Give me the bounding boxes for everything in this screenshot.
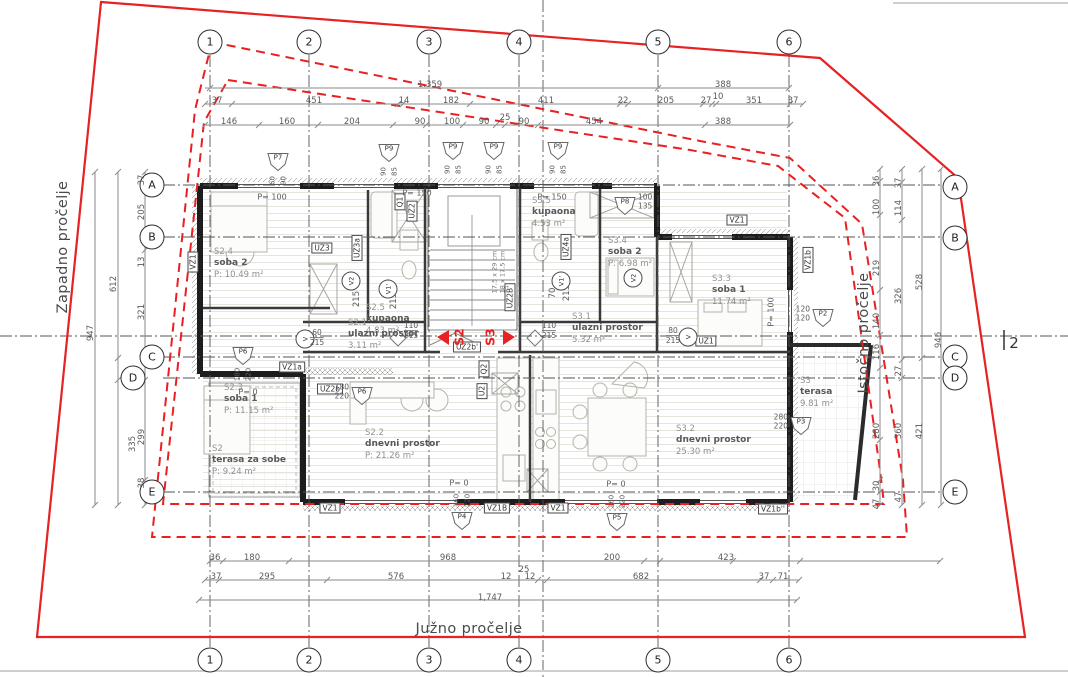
grid-bubble-B: B xyxy=(943,226,968,251)
grid-bubble-D: D xyxy=(943,366,968,391)
window-tag-dims: 280220 xyxy=(774,413,788,431)
room-label-S3.3: S3.3soba 111.74 m² xyxy=(712,274,751,308)
room-area: 11.74 m² xyxy=(712,297,751,308)
dim-label: 10 xyxy=(713,92,724,102)
wall-tag-VZ1: VZ1 xyxy=(188,251,199,272)
dim-label: 114 xyxy=(894,200,904,216)
room-id: S2.4 xyxy=(214,247,263,258)
room-label-S2.2: S2.2dnevni prostorP: 21.26 m² xyxy=(365,428,440,462)
grid-bubble-C: C xyxy=(140,345,165,370)
grid-bubble-2: 2 xyxy=(297,648,322,673)
room-label-S3.1: S3.1ulazni prostor5.32 m² xyxy=(572,312,643,346)
dim-label: 36 xyxy=(872,176,882,187)
dim-label: 37 xyxy=(759,572,770,582)
dim-label: 12 xyxy=(501,572,512,582)
room-name: soba 2 xyxy=(214,258,263,270)
dim-label: 90 xyxy=(415,117,426,127)
window-tag-P6: P6180220 xyxy=(351,387,373,406)
window-tag-dims: 9085 xyxy=(379,165,399,179)
wall-tag-U2: U2 xyxy=(477,383,488,399)
section-number-label: 2 xyxy=(1009,334,1019,352)
dim-label: 37 xyxy=(211,572,222,582)
window-tag-dims: 160220 xyxy=(607,495,627,509)
facade-label-south: Južno pročelje xyxy=(416,621,523,637)
dim-label: 351 xyxy=(746,96,762,106)
window-tag-dims: 9085 xyxy=(443,163,463,177)
window-tag-dims: 180220 xyxy=(335,383,349,401)
vent-tag-V: V xyxy=(679,328,698,347)
dim-label: 37 xyxy=(137,175,147,186)
wall-tag-VZ1B: VZ1B xyxy=(484,503,510,514)
room-area: P: 10.49 m² xyxy=(214,270,263,281)
dim-label: 200 xyxy=(604,553,620,563)
wall-tag-VZ1: VZ1 xyxy=(726,215,747,226)
grid-bubble-3: 3 xyxy=(417,648,442,673)
dim-label: 47 xyxy=(872,499,882,510)
dim-label: 528 xyxy=(915,274,925,290)
dim-label: 299 xyxy=(137,429,147,445)
facade-label-east: Istočno pročelje xyxy=(856,272,872,393)
dim-label: 388 xyxy=(715,80,731,90)
window-tag-dims: 180220 xyxy=(233,368,253,382)
dim-label: 205 xyxy=(137,204,147,220)
room-name: terasa za sobe xyxy=(212,455,286,467)
room-name: ulazni prostor xyxy=(572,323,643,335)
surface-value-label: P= 150 xyxy=(537,193,566,202)
dim-label: 204 xyxy=(344,117,360,127)
window-tag-P9: P99085 xyxy=(442,142,464,161)
dim-label: 388 xyxy=(715,117,731,127)
room-id: S2.5 xyxy=(366,303,410,314)
grid-bubble-6: 6 xyxy=(777,648,802,673)
dim-label: 37 xyxy=(212,96,223,106)
section-marker-s2: S2 xyxy=(452,328,467,346)
room-label-S3: S3terasa9.81 m² xyxy=(800,376,833,410)
dim-label: 947 xyxy=(86,325,96,341)
section-marker-s3: S3 xyxy=(483,328,498,346)
room-name: dnevni prostor xyxy=(676,435,751,447)
window-tag-dims: 100135 xyxy=(638,193,652,211)
grid-bubble-B: B xyxy=(140,225,165,250)
dim-label: 295 xyxy=(259,572,275,582)
window-tag-P7: P76090 xyxy=(267,153,289,172)
wall-tag-VZ1: VZ1 xyxy=(547,503,568,514)
grid-bubble-5: 5 xyxy=(646,30,671,55)
wall-tag-VZ1a: VZ1a xyxy=(279,362,305,373)
room-area: 9.81 m² xyxy=(800,399,833,410)
room-label-S3.2: S3.2dnevni prostor25.30 m² xyxy=(676,424,751,458)
room-id: S3.3 xyxy=(712,274,751,285)
wall-tag-VZ1b'': VZ1b'' xyxy=(758,504,788,515)
surface-value-label: P= 0 xyxy=(606,480,625,489)
grid-bubble-D: D xyxy=(121,366,146,391)
surface-value-label: P= 100 xyxy=(767,297,776,326)
dim-label: 27 xyxy=(701,96,712,106)
vent-tag-V2: V2 xyxy=(624,269,643,288)
room-area: 3.11 m² xyxy=(348,341,419,352)
dim-label: 360 xyxy=(894,423,904,439)
dim-label: 421 xyxy=(915,423,925,439)
dim-label: 12 xyxy=(525,572,536,582)
dim-label: 326 xyxy=(894,288,904,304)
dim-label: 682 xyxy=(633,572,649,582)
room-id: S2.2 xyxy=(365,428,440,439)
dim-label: 14 xyxy=(399,96,410,106)
room-label-S2.4: S2.4soba 2P: 10.49 m² xyxy=(214,247,263,281)
vent-tag-V1': V1' xyxy=(379,280,398,299)
dim-label: 100 xyxy=(872,199,882,215)
door-dimension: 110215 xyxy=(542,321,556,341)
dim-label: 36 xyxy=(210,553,221,563)
dim-label: 22 xyxy=(618,96,629,106)
window-tag-dims: 9085 xyxy=(484,163,504,177)
dim-label: 219 xyxy=(872,260,882,276)
window-tag-P9: P99085 xyxy=(378,144,400,163)
dim-label: 215 xyxy=(352,291,362,307)
room-id: S2 xyxy=(212,444,286,455)
dim-label: 182 xyxy=(443,96,459,106)
dim-label: 451 xyxy=(306,96,322,106)
dim-label: 1,747 xyxy=(478,593,502,603)
room-name: dnevni prostor xyxy=(365,439,440,451)
vent-tag-V2: V2 xyxy=(342,272,361,291)
grid-bubble-3: 3 xyxy=(417,30,442,55)
dim-label: 47 xyxy=(894,492,904,503)
window-tag-dims: 120120 xyxy=(796,305,810,323)
window-tag-dims: 160220 xyxy=(452,494,472,508)
dim-label: 411 xyxy=(538,96,554,106)
surface-value-label: P= 150 xyxy=(402,189,431,198)
room-name: soba 1 xyxy=(712,285,751,297)
dim-label: 30 xyxy=(872,481,882,492)
surface-value-label: P= 0 xyxy=(238,388,257,397)
room-area: P: 11.15 m² xyxy=(224,406,273,417)
room-area: 4.53 m² xyxy=(532,219,576,230)
room-area: P: 9.24 m² xyxy=(212,467,286,478)
window-tag-P4: P4160220 xyxy=(451,512,473,531)
window-tag-dims: 6090 xyxy=(268,174,288,188)
window-tag-P6: P6180220 xyxy=(232,347,254,366)
room-name: soba 2 xyxy=(608,247,652,259)
wall-tag-Q2: Q2 xyxy=(479,361,490,378)
dim-label: 100 xyxy=(444,117,460,127)
window-tag-P3: P3280220 xyxy=(790,417,812,436)
vent-tag-V1': V1' xyxy=(552,272,571,291)
dim-label: 140 xyxy=(872,313,882,329)
dim-label: 38 xyxy=(137,478,147,489)
door-dimension: 60215 xyxy=(310,328,324,348)
dim-label: 454 xyxy=(586,117,602,127)
dim-label: 946 xyxy=(934,332,944,348)
dim-label: 90 xyxy=(479,117,490,127)
door-dimension: 80215 xyxy=(666,326,680,346)
wall-tag-UZ2: UZ2 xyxy=(407,200,418,221)
grid-bubble-1: 1 xyxy=(198,648,223,673)
window-tag-P8: P8100135 xyxy=(614,197,636,216)
surface-value-label: P= 100 xyxy=(257,193,286,202)
window-tag-P5: P5160220 xyxy=(606,513,628,532)
grid-bubble-A: A xyxy=(943,175,968,200)
dim-label: 146 xyxy=(221,117,237,127)
room-label-S2: S2terasa za sobeP: 9.24 m² xyxy=(212,444,286,478)
dim-label: 180 xyxy=(244,553,260,563)
dim-label: 205 xyxy=(658,96,674,106)
dim-label: 37 xyxy=(894,178,904,189)
grid-bubble-4: 4 xyxy=(507,648,532,673)
dim-label: 968 xyxy=(440,553,456,563)
window-tag-P9: P99085 xyxy=(483,142,505,161)
window-tag-P2: P2120120 xyxy=(812,309,834,328)
facade-label-west: Zapadno pročelje xyxy=(55,181,71,314)
room-area: 25.30 m² xyxy=(676,447,751,458)
grid-bubble-2: 2 xyxy=(297,30,322,55)
room-id: S3.4 xyxy=(608,236,652,247)
room-label-S3.4: S3.4soba 2P: 6.98 m² xyxy=(608,236,652,270)
dim-label: 612 xyxy=(109,276,119,292)
dim-label: 1.359 xyxy=(418,80,442,90)
wall-tag-VZ1b: VZ1b xyxy=(803,247,814,273)
door-dimension: 110215 xyxy=(404,321,418,341)
dim-label: 576 xyxy=(388,572,404,582)
grid-bubble-5: 5 xyxy=(646,648,671,673)
grid-bubble-E: E xyxy=(943,480,968,505)
room-area: P: 21.26 m² xyxy=(365,451,440,462)
dim-label: 423 xyxy=(718,553,734,563)
dim-label: 116 xyxy=(872,344,882,360)
dim-label: 37 xyxy=(788,96,799,106)
wall-tag-UZ1: UZ1 xyxy=(695,336,716,347)
wall-tag-UZ3a: UZ3a xyxy=(352,235,363,261)
wall-tag-UZ3: UZ3 xyxy=(311,243,332,254)
grid-bubble-6: 6 xyxy=(777,30,802,55)
dim-label: 25 xyxy=(500,113,511,123)
surface-value-label: P= 0 xyxy=(449,479,468,488)
dim-label: 90 xyxy=(519,117,530,127)
dim-label: 280 xyxy=(872,423,882,439)
wall-tag-VZ1: VZ1 xyxy=(319,503,340,514)
room-id: S3 xyxy=(800,376,833,387)
grid-bubble-1: 1 xyxy=(198,30,223,55)
grid-bubble-4: 4 xyxy=(507,30,532,55)
floor-plan-drawing: Zapadno pročelje Istočno pročelje Južno … xyxy=(0,0,1068,677)
dim-label: 13 xyxy=(137,257,147,268)
stair-dimensions-note: 17,5 x 29 cm18 x 17,5 cm xyxy=(491,251,508,294)
dim-label: 27 xyxy=(894,366,904,377)
room-name: kupaona xyxy=(532,207,576,219)
room-area: 5.32 m² xyxy=(572,335,643,346)
dim-label: 160 xyxy=(279,117,295,127)
dim-label: 321 xyxy=(137,304,147,320)
dim-label: 71 xyxy=(778,572,789,582)
wall-tag-UZ4a: UZ4a xyxy=(561,234,572,260)
window-tag-dims: 9085 xyxy=(548,163,568,177)
annotation-overlay: Zapadno pročelje Istočno pročelje Južno … xyxy=(0,0,1068,677)
room-id: S3.2 xyxy=(676,424,751,435)
window-tag-P9: P99085 xyxy=(547,142,569,161)
room-name: terasa xyxy=(800,387,833,399)
room-id: S3.1 xyxy=(572,312,643,323)
